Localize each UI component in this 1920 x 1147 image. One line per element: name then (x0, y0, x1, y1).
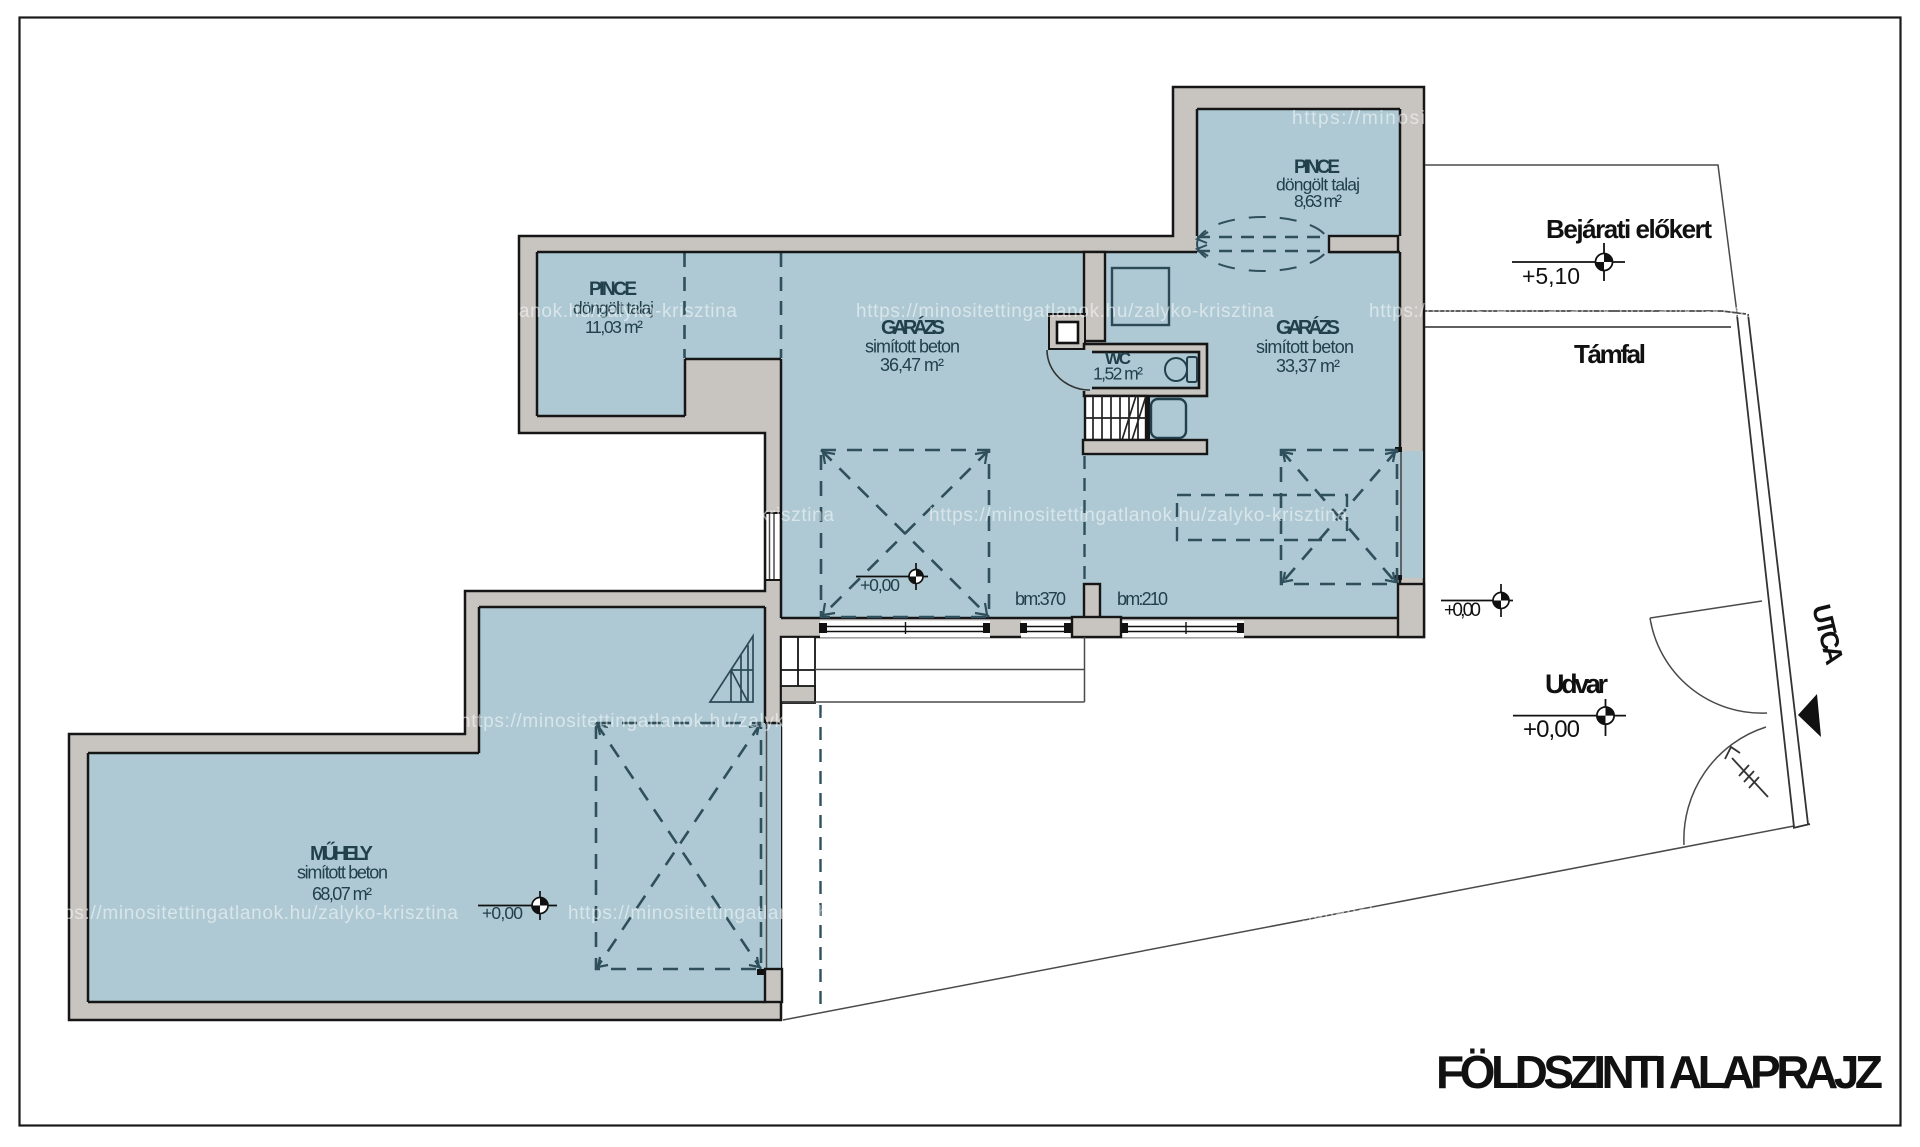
svg-text:simított beton: simított beton (865, 337, 960, 357)
svg-text:bm:370: bm:370 (1015, 589, 1066, 609)
svg-text:https://minositettingatlanok.h: https://minositettingatlanok.hu/zalyko-k… (1135, 903, 1553, 924)
svg-text:https://minositettingatlanok.h: https://minositettingatlanok.hu (1292, 108, 1592, 129)
svg-text:Udvar: Udvar (1545, 669, 1608, 699)
svg-text:1,52 m²: 1,52 m² (1093, 364, 1143, 384)
svg-text:+0,00: +0,00 (482, 903, 523, 923)
svg-text:https://minositettingatlanok.h: https://minositettingatlanok.hu/zalyko-k… (568, 903, 986, 924)
svg-text:https://minositettingatlanok.h: https://minositettingatlanok.hu/zalyko-k… (319, 301, 737, 322)
svg-text:simított beton: simított beton (297, 863, 388, 883)
svg-text:FÖLDSZINTI ALAPRAJZ: FÖLDSZINTI ALAPRAJZ (1436, 1046, 1883, 1098)
svg-text:https://minositettingatlanok.h: https://minositettingatlanok.hu/zalyko-k… (1369, 301, 1787, 322)
svg-text:33,37 m²: 33,37 m² (1276, 356, 1340, 376)
svg-text:+0,00: +0,00 (860, 575, 900, 595)
svg-text:+0,00: +0,00 (1523, 716, 1580, 743)
svg-text:bm:210: bm:210 (1117, 589, 1168, 609)
svg-text:https://minositettingatlanok.h: https://minositettingatlanok.hu/zalyko-k… (856, 301, 1274, 322)
svg-text:https://minositettingatlanok.h: https://minositettingatlanok.hu/zalyko-k… (40, 903, 458, 924)
svg-text:https://minositettingatlanok.h: https://minositettingatlanok.hu/zalyko-k… (929, 505, 1347, 526)
svg-text:PINCE: PINCE (589, 279, 637, 300)
svg-text:68,07 m²: 68,07 m² (312, 884, 372, 904)
svg-text:+5,10: +5,10 (1522, 263, 1580, 289)
svg-text:GARÁZS: GARÁZS (1276, 316, 1340, 339)
svg-text:https://minositettingatlanok.h: https://minositettingatlanok.hu/zalyko-k… (985, 711, 1403, 732)
svg-text:+0,00: +0,00 (1444, 600, 1481, 621)
svg-text:Támfal: Támfal (1574, 339, 1646, 369)
svg-text:simított beton: simított beton (1256, 337, 1354, 357)
svg-text:36,47 m²: 36,47 m² (880, 355, 944, 375)
svg-text:https://minositettingatlanok.h: https://minositettingatlanok.hu/zalyko-k… (460, 711, 878, 732)
svg-text:Bejárati előkert: Bejárati előkert (1546, 214, 1712, 244)
svg-text:https://minositettingatlanok.h: https://minositettingatlanok.hu/zalyko-k… (416, 505, 834, 526)
svg-text:8,63 m²: 8,63 m² (1294, 191, 1342, 211)
